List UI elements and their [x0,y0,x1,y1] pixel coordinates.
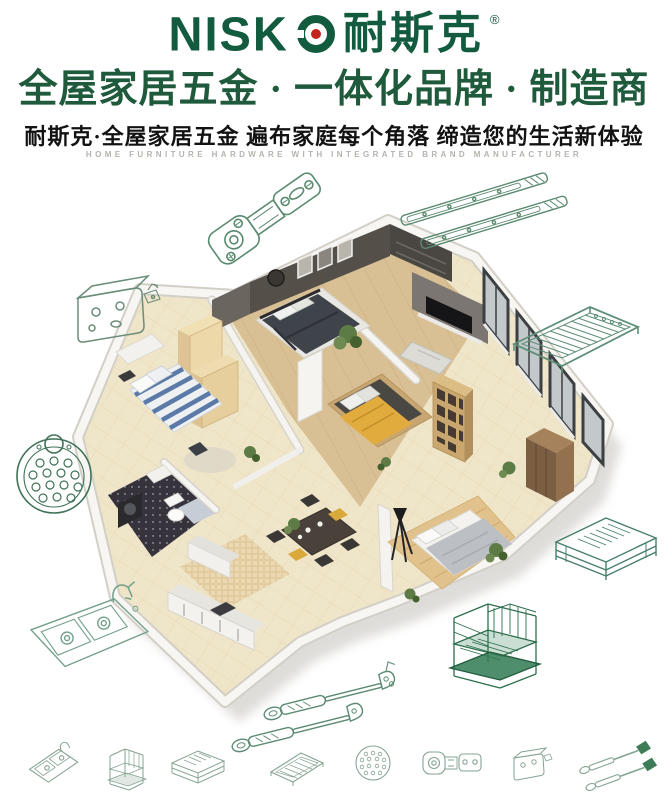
poster: NISK 耐斯克 ® 全屋家居五金 · 一体化品牌 · 制造商 耐斯克·全屋家居… [0,0,668,800]
footer-icon-concealed-hinge [419,740,485,786]
footer-icon-perforated-ball [352,742,394,784]
bookshelf [433,374,473,462]
main-headline: 全屋家居五金 · 一体化品牌 · 制造商 [0,68,668,113]
footer-icon-cabinet-rack [103,742,149,792]
brand-cjk-text: 耐斯克 [343,12,484,56]
drawing-perforated-plate [8,422,100,520]
footer-icon-hinge-bracket [506,740,554,786]
drawing-double-sink [20,578,155,696]
drawing-mounting-bracket [56,264,168,358]
target-o-icon [297,15,335,53]
footer-icon-double-sink [22,740,84,794]
brand-latin-text: NISK [169,10,289,58]
sub-headline: 耐斯克·全屋家居五金 遍布家庭每个角落 缔造您的生活新体验 [0,119,668,151]
drawing-wire-shelf [498,294,653,376]
footer-icon-gas-struts [576,736,662,794]
footer-icon-wire-shelf [265,746,329,786]
english-tagline: HOME FURNITURE HARDWARE WITH INTEGRATED … [0,150,668,159]
drawing-wire-basket [544,506,664,588]
drawing-concealed-hinge [190,178,340,260]
brand-logo: NISK 耐斯克 ® [0,10,668,57]
drawing-organizer-rack [440,588,548,694]
registered-mark: ® [490,12,500,27]
drawing-gas-struts [234,646,409,730]
footer-icon-drawer-basket [167,746,229,788]
drawing-drawer-slides [398,180,573,268]
